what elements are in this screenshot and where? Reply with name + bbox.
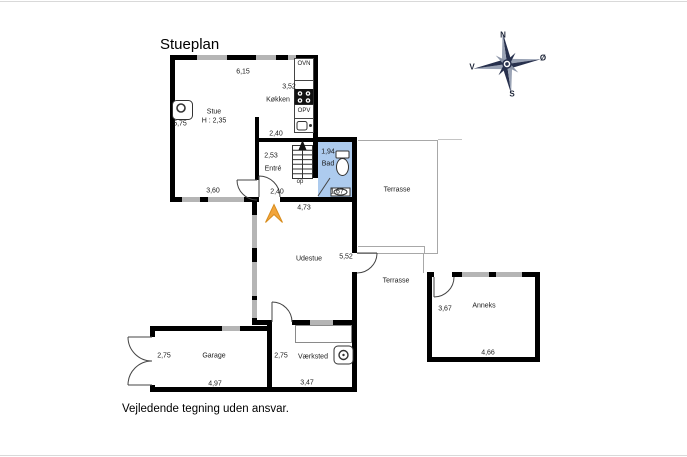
wall [267,325,272,392]
stairs-up-label: op [297,179,304,185]
measure-garage-width: 4,97 [208,381,222,388]
window-marker [256,55,276,60]
compass-east-label: Ø [540,54,546,63]
measure-bad-width: 1,94 [321,149,335,156]
page-border-bottom [0,455,687,456]
room-label-vaerksted: Værksted [298,354,328,361]
wall [352,325,357,392]
wall [280,197,318,202]
room-label-entre: Entré [265,166,282,173]
dishwasher-label: OPV [298,108,311,114]
terrace-outline [424,253,438,254]
page-title: Stueplan [160,36,219,53]
wall [255,117,259,180]
stove-icon [295,89,314,105]
measure-garage-depth: 2,75 [157,353,171,360]
counter [295,59,314,133]
measure-stue-width: 6,15 [236,69,250,76]
kitchen-fixtures [295,59,314,133]
measure-anneks-width: 4,66 [481,350,495,357]
terrace-outline [357,253,423,254]
wall [150,387,357,392]
room-label-bad: Bad [322,161,334,168]
window-marker [182,197,200,202]
window-marker [252,300,257,318]
measure-koekken-depth: 3,52 [282,84,296,91]
window-marker [222,326,240,331]
measure-entre-depth: 2,53 [264,153,278,160]
measure-udestue-depth: 5,52 [339,254,353,261]
measure-house-bottom: 4,73 [297,205,311,212]
wall [150,326,272,331]
door-udestue-terrasse [357,253,377,273]
measure-vaerksted-depth: 2,75 [274,353,288,360]
wall [313,55,318,142]
kitchen-sink-icon [297,122,312,131]
measure-anneks-depth: 3,67 [438,306,452,313]
measure-stue-depth: 5,75 [173,121,187,128]
workbench [295,325,352,343]
garage-double-doors [128,337,152,385]
terrace-outline [423,253,424,273]
roof-overhang-line [438,139,462,140]
room-label-terrasse-lower: Terrasse [383,278,410,285]
room-label-udestue: Udestue [296,256,322,263]
compass-south-label: S [509,90,514,99]
stue-ceiling-height: H : 2,35 [202,118,227,125]
window-marker [496,272,522,277]
window-marker [208,197,244,202]
terrace-outline [437,140,438,254]
wall [352,137,357,202]
wall [352,202,357,253]
wall [427,272,432,362]
boiler-icon [334,346,353,364]
wall [427,357,540,362]
measure-stue-bottom: 3,60 [206,188,220,195]
room-label-koekken: Køkken [266,97,290,104]
compass-rose-icon [469,28,545,99]
room-label-garage: Garage [202,353,225,360]
terrace-outline [358,246,425,247]
oven-label: OVN [297,61,310,67]
terrace-outline [358,140,438,141]
wall [535,272,540,362]
wall [313,137,357,142]
window-marker [252,215,257,248]
wall [150,326,155,337]
wall [352,272,357,325]
page-border-top [0,1,687,2]
disclaimer-text: Vejledende tegning uden ansvar. [122,403,289,415]
room-label-terrasse-upper: Terrasse [384,187,411,194]
window-marker [252,262,257,296]
wood-stove-icon [173,101,193,120]
measure-bad-depth: 1,67 [330,189,344,196]
wall [170,55,175,202]
floor-plan-page: Stueplan Vejledende tegning uden ansvar. [0,0,687,457]
room-label-stue: Stue [207,109,221,116]
window-marker [288,55,296,60]
compass-north-label: N [500,31,506,40]
room-label-anneks: Anneks [472,303,495,310]
window-marker [310,320,333,325]
stairs [293,140,313,179]
measure-koekken-width: 2,40 [269,131,283,138]
window-marker [462,272,489,277]
wall [313,142,318,178]
window-marker [197,55,227,60]
door-udestue-inner [272,302,292,322]
door-anneks [434,277,454,297]
measure-entre-width: 2,40 [270,189,284,196]
compass-west-label: V [469,63,474,72]
entrance-arrow-icon [266,205,283,223]
measure-vaerksted-width: 3,47 [300,380,314,387]
wall [259,138,313,142]
